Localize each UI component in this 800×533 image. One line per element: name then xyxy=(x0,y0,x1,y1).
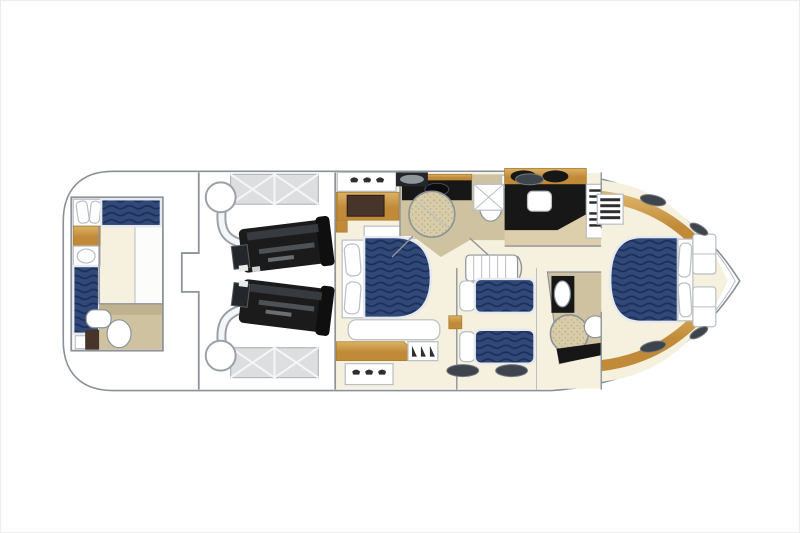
vip-pillow xyxy=(678,243,692,278)
starboard-muffler xyxy=(206,341,236,371)
corridor-stairs xyxy=(466,255,522,281)
crew-sink xyxy=(86,310,111,328)
guest-toilet xyxy=(554,281,570,307)
companionway-steps-bow xyxy=(597,194,623,224)
master-tv xyxy=(347,195,384,216)
crew-dark-cabinet xyxy=(85,330,99,350)
crew-storage xyxy=(135,226,162,304)
aft-crew-cabin xyxy=(71,197,163,350)
port-muffler xyxy=(206,182,236,212)
master-pillow-2 xyxy=(344,281,362,314)
twin-pillow-aft xyxy=(460,332,475,362)
hull-window xyxy=(447,365,479,377)
twin-nightstand xyxy=(449,316,462,329)
locker-vents-2 xyxy=(352,370,386,375)
floorplan-svg xyxy=(1,1,799,532)
locker-vents xyxy=(350,177,384,182)
deck-hatch-oval xyxy=(400,175,424,184)
crew-pillow xyxy=(76,201,90,224)
yacht-floorplan-image xyxy=(0,0,800,533)
companionway-steps xyxy=(408,342,438,361)
twin-bed-aft xyxy=(475,330,535,364)
engine-room-hatch-starboard xyxy=(231,348,319,378)
midship-section xyxy=(336,168,619,389)
crew-pillow-2 xyxy=(89,201,101,224)
vip-pillow-2 xyxy=(678,283,692,318)
crew-single-berth-athwartships xyxy=(101,199,161,226)
crew-cabin-floor xyxy=(99,226,135,304)
galley-cooktop-burner-2 xyxy=(542,170,568,182)
crew-sink-basin xyxy=(77,249,95,263)
vip-island-double-bed xyxy=(610,237,678,322)
master-pillow xyxy=(344,243,362,276)
crew-chest xyxy=(73,226,100,246)
engine-room-hatch-port xyxy=(231,174,319,204)
master-bench xyxy=(348,320,440,340)
twin-bed-forward xyxy=(475,279,535,313)
galley-sink xyxy=(528,191,552,211)
bow-vip-cabin xyxy=(597,172,728,389)
hull-window-2 xyxy=(496,365,528,377)
crew-toilet xyxy=(107,320,131,348)
twin-pillow-fwd xyxy=(460,281,475,311)
master-double-bed xyxy=(364,237,431,318)
hull-window-3 xyxy=(516,174,544,185)
